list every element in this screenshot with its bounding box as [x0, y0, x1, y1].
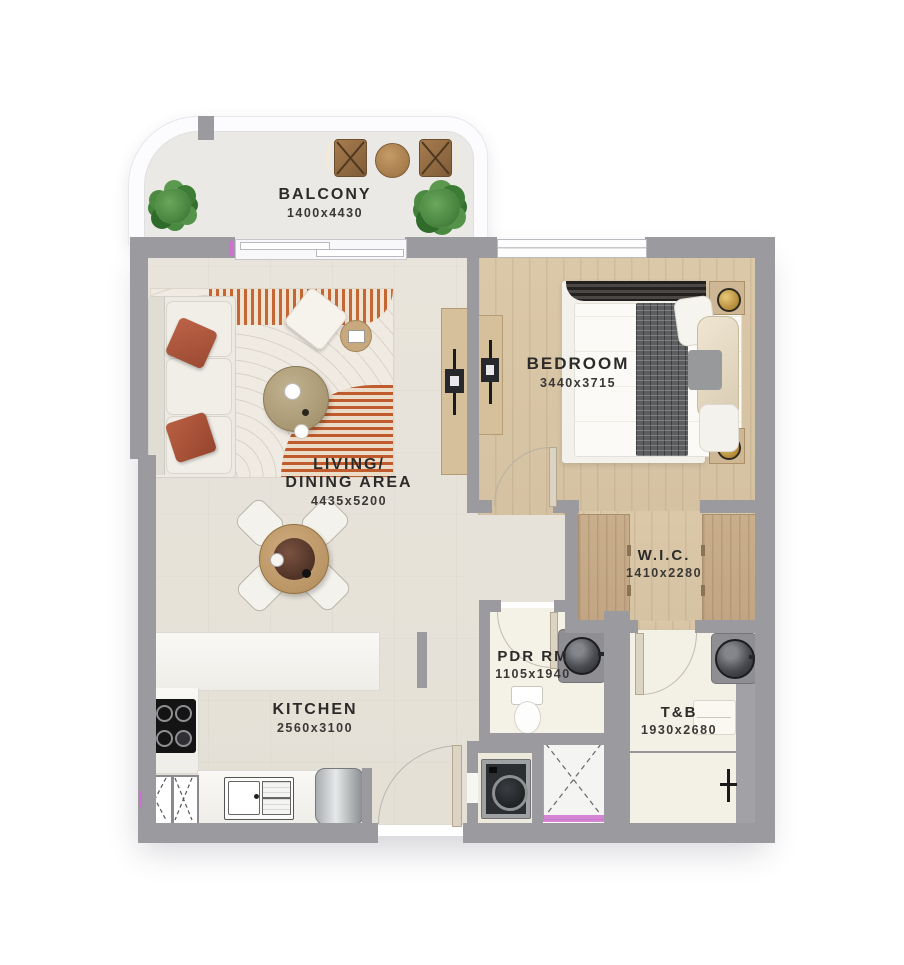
balcony-chair-right	[419, 139, 452, 177]
utility-shaft	[543, 741, 606, 820]
balcony-label: BALCONY 1400x4430	[250, 186, 400, 220]
coffee-table	[263, 366, 329, 432]
cooktop	[152, 699, 196, 753]
room-name: T&B	[618, 704, 740, 721]
wall	[467, 500, 492, 513]
floor-plan-canvas: BALCONY 1400x4430 LIVING/ DINING AREA 44…	[0, 0, 904, 965]
nightstand-top	[709, 281, 745, 315]
balcony-table	[375, 143, 410, 178]
bed-gray-throw	[688, 350, 722, 390]
tb-label: T&B 1930x2680	[618, 704, 740, 737]
bedroom-door-leaf	[549, 447, 557, 507]
room-dims: 1410x2280	[604, 566, 724, 580]
balcony-chair-left	[334, 139, 367, 177]
tv-mount	[481, 358, 499, 382]
duct-x-pattern	[174, 777, 193, 821]
wall	[755, 237, 775, 843]
duct-box	[172, 775, 199, 827]
accent-tick	[229, 241, 233, 256]
kitchen-sink	[224, 777, 294, 820]
wall	[138, 455, 156, 825]
washer-door	[492, 775, 528, 811]
wall	[467, 803, 478, 823]
tv-mount-plate	[450, 376, 459, 386]
room-name: W.I.C.	[604, 547, 724, 564]
wall	[467, 741, 543, 753]
washing-machine	[481, 759, 531, 819]
washer-indicator	[489, 767, 497, 773]
sofa	[148, 296, 236, 478]
room-dims: 1105x1940	[470, 667, 596, 681]
shower-wall	[736, 681, 755, 823]
cup	[284, 383, 301, 400]
table-dot	[302, 409, 309, 416]
wall	[532, 753, 543, 823]
wall	[362, 768, 372, 823]
toilet-bowl	[514, 701, 541, 734]
shower-head-cross	[720, 783, 737, 786]
refrigerator	[315, 768, 364, 825]
room-name: KITCHEN	[240, 701, 390, 719]
plant-right	[420, 188, 460, 228]
faucet-dot	[254, 794, 259, 799]
room-name: DINING AREA	[268, 474, 430, 492]
chair-backrest	[326, 140, 343, 175]
wall	[130, 237, 148, 459]
tv-mount-plate	[486, 365, 494, 375]
hall-floor	[467, 511, 567, 602]
tb-sink-block	[711, 633, 757, 684]
room-dims: 1400x4430	[250, 206, 400, 220]
living-dining-label: LIVING/ DINING AREA 4435x5200	[268, 456, 430, 508]
room-name: LIVING/	[268, 456, 430, 474]
room-dims: 4435x5200	[268, 494, 430, 508]
bedroom-window	[497, 239, 647, 258]
balcony-sliding-door	[235, 239, 407, 260]
room-dims: 1930x2680	[618, 723, 740, 737]
dining-table	[259, 524, 329, 594]
pdr-label: PDR RM 1105x1940	[470, 648, 596, 681]
room-name: BALCONY	[250, 186, 400, 204]
bed-pillow-white-bottom	[699, 404, 739, 452]
chair-backrest	[443, 140, 460, 175]
burner	[175, 730, 192, 747]
sofa-backrest	[149, 297, 165, 475]
room-dims: 3440x3715	[503, 376, 653, 390]
wall	[554, 600, 578, 612]
wic-label: W.I.C. 1410x2280	[604, 547, 724, 580]
accent-tick	[139, 791, 142, 807]
bedroom-tv-console	[478, 315, 503, 435]
wall	[467, 258, 479, 513]
wardrobe-handle	[627, 585, 631, 596]
tb-door-leaf	[635, 633, 644, 695]
shower-glass-partition	[630, 751, 736, 753]
book	[348, 330, 365, 343]
sink-drainer	[262, 781, 291, 798]
side-table	[340, 320, 372, 352]
lamp	[717, 288, 741, 312]
table-dot	[302, 569, 311, 578]
wall	[467, 753, 478, 773]
cup	[270, 553, 284, 567]
wall	[417, 632, 427, 688]
burner	[156, 705, 173, 722]
wall	[700, 500, 757, 513]
room-name: PDR RM	[470, 648, 596, 665]
living-tv-console	[441, 308, 468, 475]
balcony-post	[198, 116, 214, 140]
plant-left	[155, 188, 191, 224]
sink-drainer	[262, 798, 291, 815]
room-dims: 2560x3100	[240, 721, 390, 735]
shaft-x-pattern	[544, 742, 603, 817]
wall	[138, 823, 378, 843]
niche-threshold	[467, 773, 478, 803]
wardrobe-handle	[701, 585, 705, 596]
tb-basin	[715, 639, 755, 679]
slider-panel	[316, 249, 404, 257]
room-name: BEDROOM	[503, 354, 653, 374]
bedroom-label: BEDROOM 3440x3715	[503, 354, 653, 390]
burner	[175, 705, 192, 722]
floor-ball-decor	[294, 424, 309, 439]
tv-mount	[445, 369, 464, 393]
kitchen-counter-top	[148, 632, 380, 691]
wall	[405, 237, 497, 258]
entrance-door-leaf	[452, 745, 462, 827]
burner	[156, 730, 173, 747]
shaft-accent-strip	[543, 815, 604, 822]
wall	[463, 823, 775, 843]
wall	[695, 620, 757, 633]
kitchen-label: KITCHEN 2560x3100	[240, 701, 390, 735]
